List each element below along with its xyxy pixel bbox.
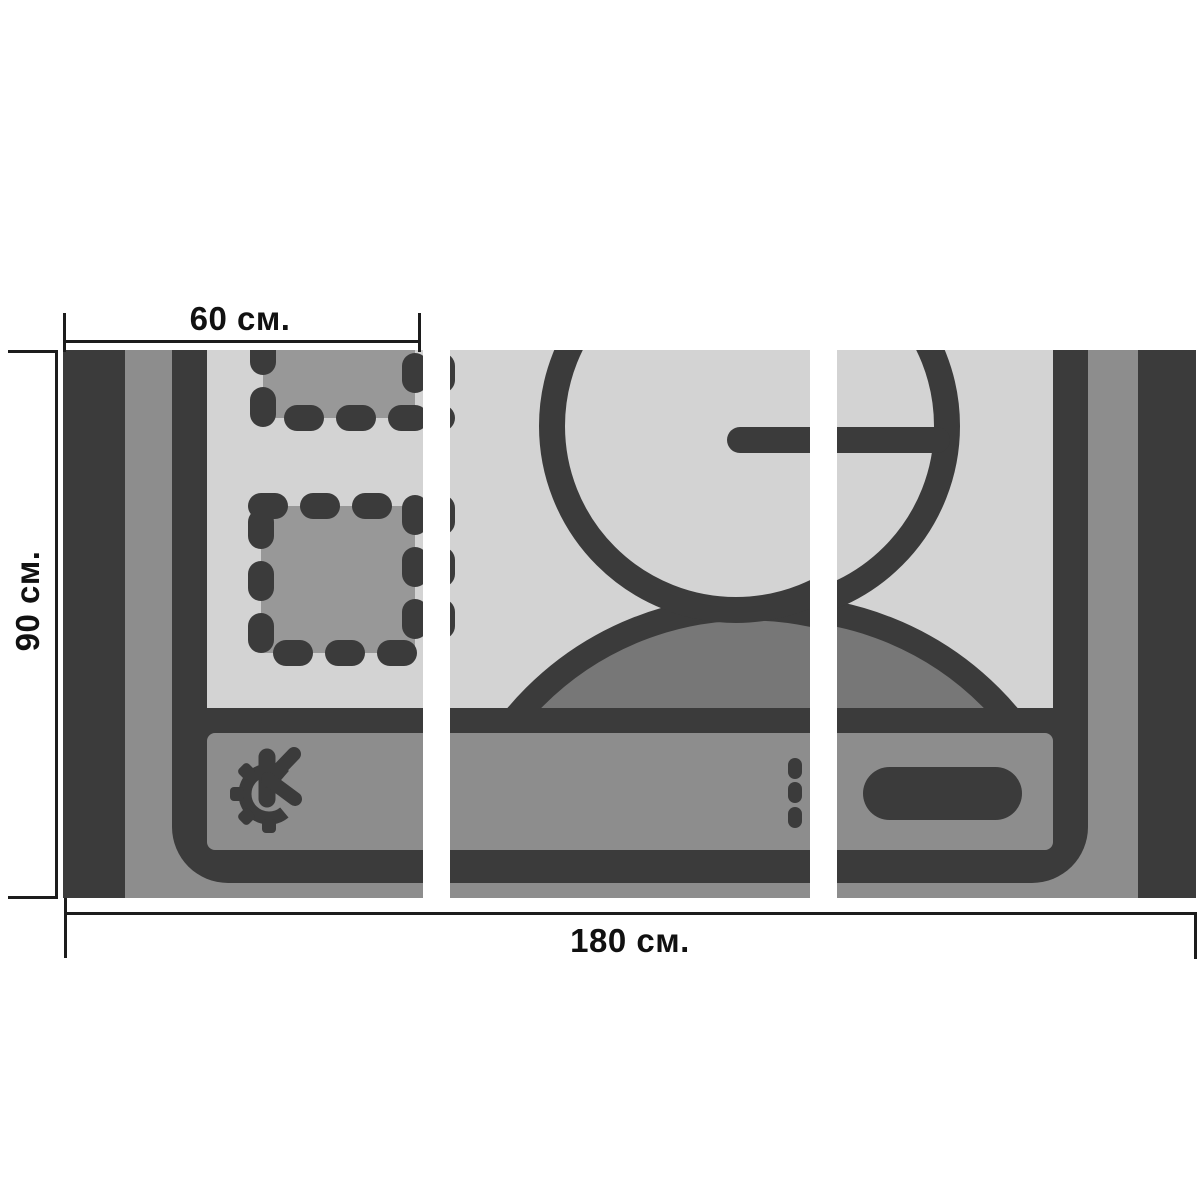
panel-2 [450,350,810,898]
bottom-dimension-tick-left [64,898,67,958]
bottom-dimension-tick-right [1194,912,1197,959]
top-dimension-label: 60 см. [130,300,350,338]
left-dimension-label: 90 см. [9,501,47,701]
top-dimension-line [63,340,421,343]
bottom-dimension-label: 180 см. [520,922,740,960]
panel-1 [63,350,423,898]
left-dimension-tick-top [8,350,58,353]
left-dimension-tick-bottom [8,896,58,899]
mockup-stage: 60 см. 90 см. 180 см. [0,0,1200,1200]
top-dimension-tick-left [63,313,66,352]
top-dimension-tick-right [418,313,421,352]
panel-3 [837,350,1196,898]
bottom-dimension-line [64,912,1197,915]
left-dimension-line [55,352,58,898]
